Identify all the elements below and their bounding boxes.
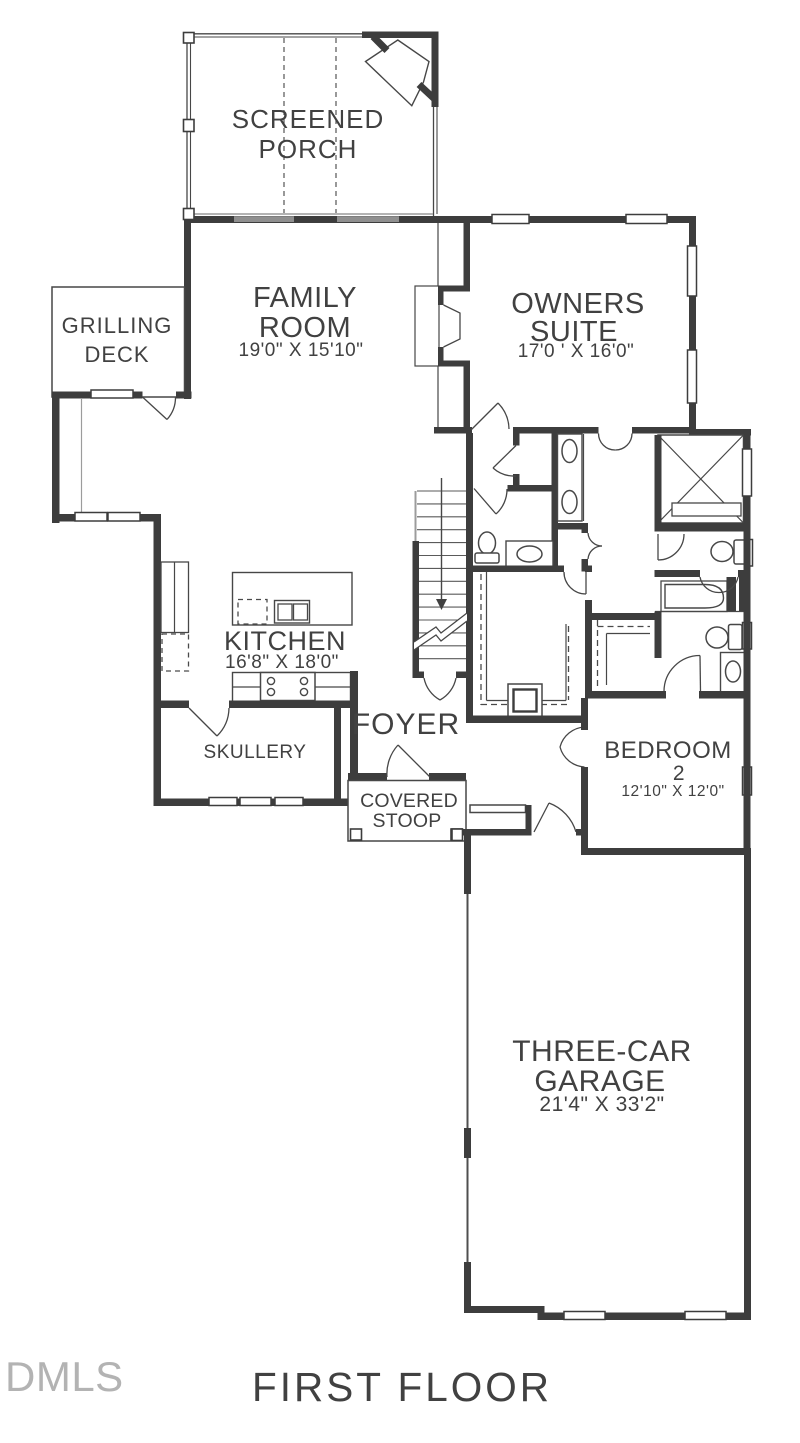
svg-text:FOYER: FOYER bbox=[352, 708, 460, 741]
svg-text:FAMILY: FAMILY bbox=[253, 282, 357, 314]
svg-text:GRILLING: GRILLING bbox=[62, 313, 173, 338]
svg-text:DMLS: DMLS bbox=[5, 1353, 124, 1400]
svg-text:PORCH: PORCH bbox=[259, 134, 358, 164]
svg-text:2: 2 bbox=[673, 762, 685, 785]
svg-text:DECK: DECK bbox=[84, 342, 149, 367]
svg-text:THREE-CAR: THREE-CAR bbox=[512, 1035, 692, 1068]
svg-text:STOOP: STOOP bbox=[373, 810, 442, 832]
svg-text:COVERED: COVERED bbox=[360, 790, 458, 812]
svg-text:19'0" X 15'10": 19'0" X 15'10" bbox=[239, 340, 364, 361]
svg-text:12'10" X 12'0": 12'10" X 12'0" bbox=[621, 783, 724, 800]
svg-text:16'8" X 18'0": 16'8" X 18'0" bbox=[225, 652, 339, 673]
svg-text:21'4" X 33'2": 21'4" X 33'2" bbox=[539, 1093, 664, 1116]
svg-text:SKULLERY: SKULLERY bbox=[204, 742, 307, 763]
svg-text:SCREENED: SCREENED bbox=[232, 104, 384, 134]
svg-text:BEDROOM: BEDROOM bbox=[604, 737, 732, 764]
svg-text:FIRST FLOOR: FIRST FLOOR bbox=[252, 1364, 552, 1410]
svg-text:17'0 ' X 16'0": 17'0 ' X 16'0" bbox=[518, 341, 635, 362]
